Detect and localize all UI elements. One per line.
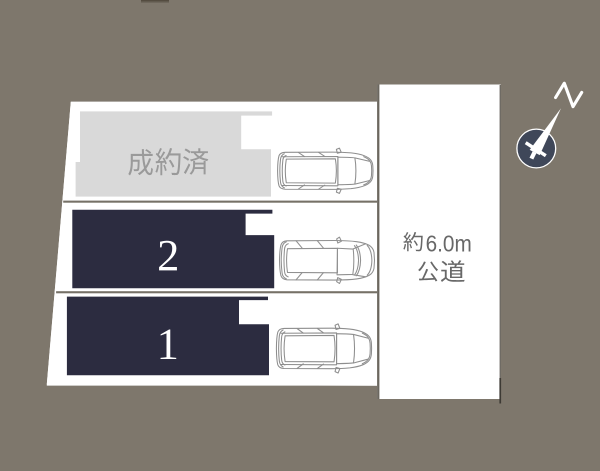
svg-text:6.0m: 6.0m — [426, 231, 472, 257]
svg-text:2: 2 — [157, 230, 179, 280]
svg-text:1: 1 — [157, 319, 179, 369]
